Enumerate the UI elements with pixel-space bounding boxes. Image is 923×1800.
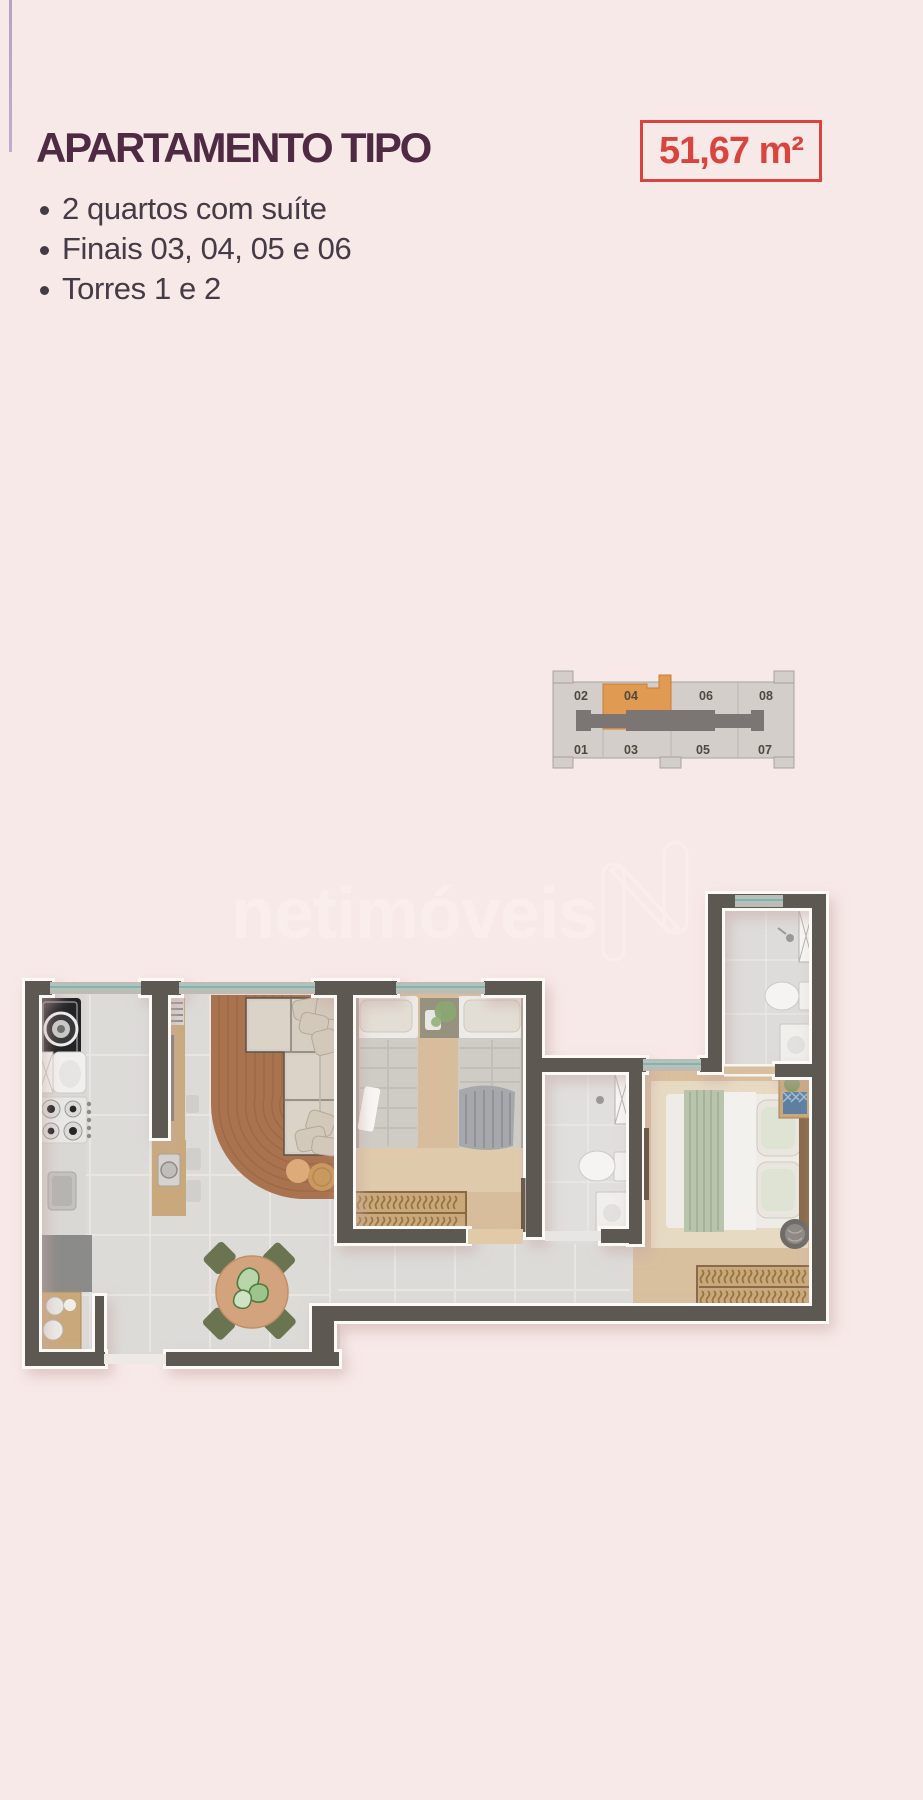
svg-text:05: 05 [696,743,710,757]
svg-text:03: 03 [624,743,638,757]
svg-text:04: 04 [624,689,638,703]
svg-text:01: 01 [574,743,588,757]
svg-text:02: 02 [574,689,588,703]
svg-text:netimóveis: netimóveis [231,874,597,954]
svg-text:06: 06 [699,689,713,703]
svg-text:07: 07 [758,743,772,757]
svg-text:08: 08 [759,689,773,703]
